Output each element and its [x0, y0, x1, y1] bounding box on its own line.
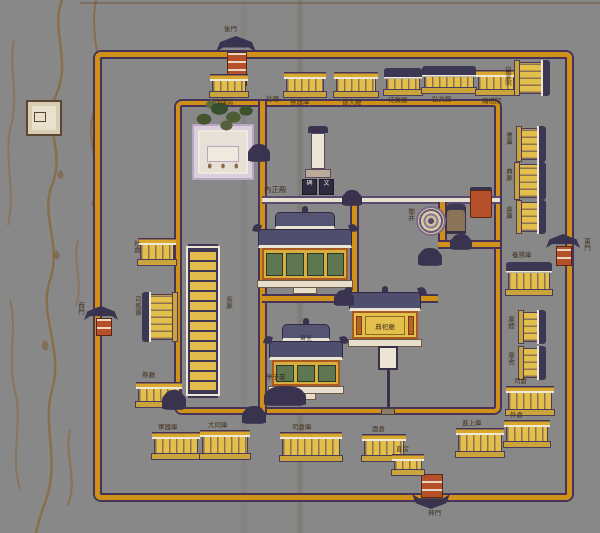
east-hall: 典祀廳	[352, 286, 418, 347]
south-gate-body	[421, 474, 443, 498]
building-label: 香大廳	[342, 99, 362, 106]
building-label: 祭廳	[142, 372, 155, 379]
hillside-shrine-symbol	[26, 100, 62, 136]
storehouse	[282, 432, 340, 462]
south-gate-label: 神門	[428, 510, 441, 517]
inner-gate	[244, 406, 264, 422]
storehouse	[154, 432, 198, 460]
building-label: 弘文館	[432, 96, 452, 103]
lower-roof	[258, 229, 353, 248]
steps	[293, 288, 317, 294]
storehouse	[518, 348, 546, 378]
main-hall	[262, 206, 348, 294]
building-label: 司倉庫	[292, 424, 312, 431]
inner-gate	[452, 234, 470, 248]
upper-roof	[275, 212, 335, 229]
storehouse	[518, 312, 546, 342]
building-label: 司馬齋	[133, 296, 140, 316]
storehouse	[386, 68, 420, 96]
storehouse	[202, 430, 248, 460]
building-label: 大同庫	[208, 422, 228, 429]
building-label: 守僕房	[214, 99, 234, 106]
small-pavilion-label: 亭子臺	[266, 374, 286, 381]
stele-plaques: 碑文	[302, 179, 334, 195]
inner-gate	[344, 190, 360, 204]
building-label: 直房	[396, 446, 409, 453]
courtyard-wall	[262, 196, 500, 204]
west-gate-label: 西門	[76, 302, 83, 315]
building-label: 軍器庫	[158, 424, 178, 431]
inner-gate	[336, 290, 352, 304]
building-label: 養賢庫	[512, 252, 532, 259]
north-gate-label: 後門	[224, 26, 237, 33]
storehouse	[514, 164, 546, 198]
storehouse	[286, 72, 324, 98]
stone-platform	[257, 280, 353, 288]
corridor-label: 長廊	[224, 296, 231, 309]
storehouse	[506, 420, 548, 448]
storehouse	[140, 238, 174, 266]
altar-marks	[204, 162, 241, 170]
east-gate-label: 東門	[582, 238, 589, 251]
storehouse	[516, 202, 546, 232]
building-label: 白雲院	[503, 66, 510, 86]
storehouse	[394, 454, 422, 476]
corridor-building	[188, 248, 218, 394]
building-label: 外倉	[510, 412, 523, 419]
storehouse	[336, 72, 376, 98]
scan-edge	[80, 2, 600, 4]
placard-monument	[378, 346, 398, 415]
storehouse	[508, 262, 550, 296]
storehouse	[142, 294, 178, 340]
storehouse	[212, 74, 246, 98]
building-label: 待賓廳	[388, 97, 408, 104]
building-label: 進上庫	[462, 420, 482, 427]
west-gate-body	[96, 318, 112, 336]
stele-monument: 碑文	[302, 126, 334, 195]
red-gate-post	[470, 190, 492, 218]
well	[416, 206, 446, 236]
building-label: 司倉	[514, 378, 527, 385]
building-label: 書庫	[504, 132, 511, 145]
building-label: 倉庫	[504, 206, 511, 219]
well-label: 御井	[406, 208, 413, 221]
north-gate-roof	[216, 36, 256, 52]
building-label: 庫舍	[506, 352, 513, 365]
inner-gate	[164, 390, 184, 408]
storehouse	[458, 428, 502, 458]
building-label: 典廊	[504, 168, 511, 181]
hall-doors	[262, 248, 348, 280]
storehouse	[424, 66, 474, 94]
east-hall-label: 典祀廳	[365, 316, 405, 335]
east-gate-body	[556, 246, 572, 266]
inner-gate	[250, 144, 268, 160]
building-label: 兩塔院	[482, 98, 502, 105]
storehouse	[516, 128, 546, 160]
main-hall-label: 內正殿	[264, 186, 287, 195]
well-shrine	[446, 204, 466, 232]
building-label: 社倉	[132, 240, 139, 253]
west-pavilion-label: 齋室	[270, 333, 343, 342]
building-label: 面倉	[372, 426, 385, 433]
small-pavilion	[266, 386, 304, 404]
historical-map-scan: 長廊 社壇 碑文 內正殿 齋室	[0, 0, 600, 533]
altar-label: 社壇	[266, 96, 279, 103]
inner-gate	[420, 248, 440, 264]
storehouse	[514, 62, 550, 94]
building-label: 祭器庫	[290, 99, 310, 106]
building-label: 庫間	[506, 316, 513, 329]
